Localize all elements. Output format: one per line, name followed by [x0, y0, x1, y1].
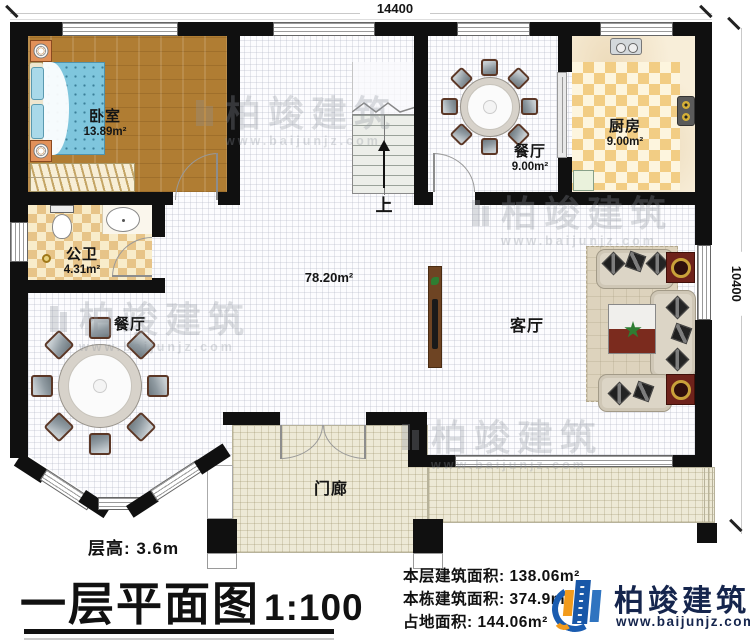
entry-door-leaf-left — [280, 425, 282, 459]
window — [457, 22, 530, 36]
window — [10, 222, 28, 262]
sofa-top — [596, 249, 674, 289]
slider-track — [562, 77, 563, 153]
plant-icon — [624, 321, 642, 339]
window — [273, 22, 375, 36]
dim-tick — [5, 5, 18, 18]
room-name: 餐厅 — [498, 143, 562, 161]
plan-title-text: 一层平面图 — [20, 568, 260, 634]
hall-area-label: 78.20m² — [293, 270, 365, 286]
table-center-dot — [93, 379, 107, 393]
coffee-table — [608, 304, 656, 354]
nightstand-bottom — [30, 140, 52, 162]
wall-kitchen-bottom — [558, 192, 712, 205]
window — [62, 22, 178, 36]
room-area: 9.00m² — [593, 136, 657, 150]
side-table-top — [666, 252, 695, 283]
room-area: 13.89m² — [60, 126, 150, 140]
wall-bedroom-bottom — [10, 192, 173, 205]
brand-website: www.baijunjz.com — [616, 614, 750, 629]
terrace-floor — [428, 467, 715, 523]
sofa-cushion — [665, 295, 689, 319]
wall — [530, 22, 600, 36]
dim-width-label: 14400 — [360, 1, 430, 17]
porch-pillar-left — [207, 519, 237, 553]
dim-tick — [699, 5, 712, 18]
stove — [677, 96, 695, 126]
footprint-area-row: 占地面积: 144.06m² — [403, 610, 548, 632]
room-area: 4.31m² — [42, 264, 122, 278]
sink-basin-1 — [616, 43, 626, 53]
wall — [695, 320, 712, 467]
dining-table-left — [58, 344, 142, 428]
dining-top-label: 餐厅 9.00m² — [498, 143, 562, 175]
dim-tick — [727, 17, 740, 30]
plant-pot-icon — [671, 258, 691, 278]
fridge — [573, 170, 594, 191]
wall-porch-post — [408, 412, 427, 467]
sofa-cushion — [607, 381, 631, 405]
wall-kitchen-left — [558, 36, 572, 72]
window — [600, 22, 673, 36]
total-area-row: 本栋建筑面积: 374.9m² — [403, 587, 571, 609]
sofa-cushion — [601, 251, 625, 275]
terrace-pillar — [697, 523, 717, 543]
burner-1 — [682, 101, 690, 109]
sofa-cushion — [671, 323, 693, 345]
title-underline-thin — [24, 638, 334, 640]
room-name: 公卫 — [42, 246, 122, 264]
chair — [481, 59, 498, 76]
window — [697, 245, 711, 320]
bed-pillow-1 — [31, 67, 44, 100]
plan-scale-text: 1:100 — [264, 587, 364, 629]
toilet-tank — [50, 205, 74, 213]
side-table-bottom — [666, 374, 695, 405]
wardrobe — [30, 163, 135, 192]
terrace-edge-lines — [704, 468, 715, 522]
wall-bedroom-right — [227, 36, 240, 205]
bedroom-label: 卧室 13.89m² — [60, 108, 150, 140]
wall — [427, 455, 455, 467]
wall — [178, 22, 273, 36]
entry-door-leaf-right — [364, 425, 366, 459]
wall — [695, 22, 712, 245]
wall-bathroom-right — [152, 205, 165, 237]
toilet-bowl — [52, 214, 72, 239]
chair — [521, 98, 538, 115]
wall-bathroom-bottom — [10, 280, 165, 293]
floor-height-label: 层高: 3.6m — [88, 534, 179, 559]
chair — [89, 433, 111, 455]
stair-arrow-head — [378, 140, 390, 151]
porch-label: 门廊 — [300, 480, 362, 499]
room-area: 9.00m² — [498, 161, 562, 175]
room-name: 门廊 — [300, 480, 362, 499]
bathroom-sink — [106, 207, 140, 232]
plan-title: 一层平面图 1:100 — [20, 568, 364, 634]
chair — [31, 375, 53, 397]
bed-pillow-2 — [31, 104, 44, 139]
wall-porch — [223, 412, 280, 425]
wall-dining-bottom — [475, 192, 558, 205]
chair — [481, 138, 498, 155]
dim-depth-label: 10400 — [728, 252, 744, 316]
wall — [673, 455, 695, 467]
room-name: 餐厅 — [98, 316, 162, 334]
kitchen-label: 厨房 9.00m² — [593, 118, 657, 150]
wall-stair-right — [414, 36, 428, 203]
logo-tower-light — [590, 590, 602, 622]
sink-basin-2 — [628, 43, 638, 53]
wall-porch — [366, 412, 408, 425]
brand-logo-icon — [552, 578, 606, 636]
wall — [218, 192, 240, 205]
table-center-dot — [483, 100, 497, 114]
dim-guide-top-2 — [10, 19, 712, 20]
porch-pillar-right — [413, 519, 443, 553]
window-living-south — [455, 455, 673, 467]
nightstand-top — [30, 40, 52, 62]
wall — [414, 192, 433, 205]
floor-plan-canvas: 柏竣建筑www.baijunjz.com 柏竣建筑www.baijunjz.co… — [0, 0, 750, 644]
drain-dot — [122, 219, 125, 222]
dining-door-leaf — [433, 153, 435, 192]
porch-step — [207, 465, 233, 519]
title-underline — [24, 629, 334, 634]
lamp-icon — [34, 144, 49, 159]
sofa-cushion — [625, 251, 647, 273]
sofa-right — [650, 290, 696, 378]
stairs-up-label: 上 — [366, 196, 402, 216]
bathroom-label: 公卫 4.31m² — [42, 246, 122, 278]
wall — [375, 22, 457, 36]
room-name: 客厅 — [494, 317, 560, 336]
chair — [147, 375, 169, 397]
brand-logo: 柏竣建筑 www.baijunjz.com — [552, 576, 747, 638]
tv-icon — [432, 299, 438, 349]
porch-pillar-left-base — [207, 553, 237, 569]
burner-2 — [682, 113, 690, 121]
dining-left-label: 餐厅 — [98, 316, 162, 334]
plant-icon — [431, 277, 439, 285]
tv-cabinet — [428, 266, 442, 368]
living-label: 客厅 — [494, 317, 560, 336]
room-name: 厨房 — [593, 118, 657, 136]
sofa-cushion — [633, 381, 655, 403]
stair-arrow-stem — [383, 150, 385, 188]
room-name: 卧室 — [60, 108, 150, 126]
sofa-bottom — [598, 374, 672, 412]
bedroom-door-leaf — [216, 153, 218, 200]
kitchen-sink — [610, 38, 642, 55]
lamp-icon — [34, 44, 49, 59]
chair — [441, 98, 458, 115]
sofa-cushion — [665, 347, 689, 371]
plant-pot-icon — [671, 380, 691, 400]
